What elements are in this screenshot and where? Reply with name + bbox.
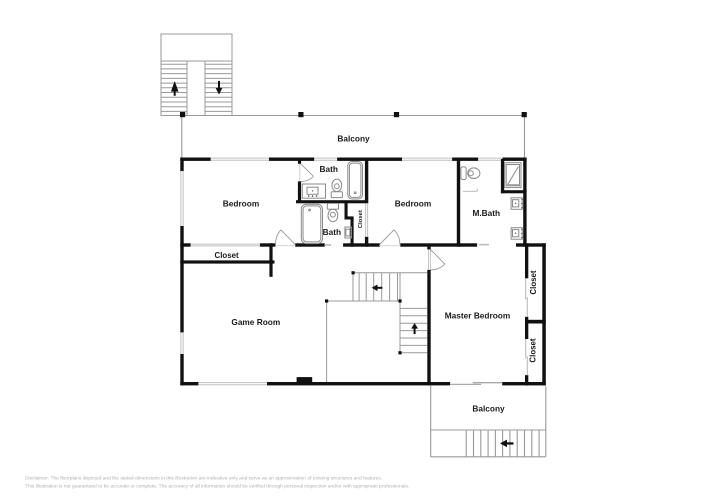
svg-text:Game Room: Game Room (231, 317, 280, 327)
svg-text:Closet: Closet (529, 270, 538, 294)
svg-text:Closet: Closet (358, 210, 364, 228)
svg-text:Bedroom: Bedroom (223, 199, 259, 209)
svg-text:Bath: Bath (319, 164, 337, 174)
svg-text:Disclaimer: The floorplans dep: Disclaimer: The floorplans depicted and … (25, 476, 382, 482)
svg-text:Bath: Bath (323, 227, 341, 237)
svg-text:M.Bath: M.Bath (472, 208, 500, 218)
svg-text:Balcony: Balcony (337, 133, 370, 143)
svg-text:This illustration is not guara: This illustration is not guaranteed to b… (25, 484, 409, 490)
svg-text:Closet: Closet (529, 338, 538, 362)
svg-text:Balcony: Balcony (472, 404, 505, 414)
svg-text:Master Bedroom: Master Bedroom (445, 310, 510, 320)
svg-text:Bedroom: Bedroom (395, 199, 431, 209)
svg-text:Closet: Closet (215, 251, 239, 260)
